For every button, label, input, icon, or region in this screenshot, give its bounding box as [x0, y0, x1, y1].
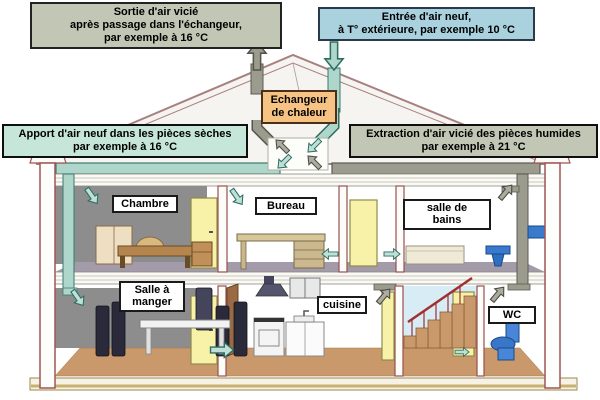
heat-exchanger-label: Echangeurde chaleur: [261, 90, 337, 124]
wc-vent-stub: [508, 284, 530, 290]
supply-arrow-icon: [227, 186, 247, 207]
room-label-salle-a-manger: Salle àmanger: [119, 281, 185, 312]
room-label-wc: WC: [488, 306, 536, 324]
kitchen-window: [290, 278, 320, 298]
room-label-salle-de-bains: salle debains: [403, 199, 491, 230]
kitchen-counter: [286, 311, 324, 356]
callout-extraction-humid-rooms: Extraction d'air vicié des pièces humide…: [349, 124, 598, 158]
callout-fresh-air-inlet: Entrée d'air neuf,à T° extérieure, par e…: [318, 7, 535, 41]
foundation: [30, 378, 577, 390]
callout-exhaust-outlet: Sortie d'air viciéaprès passage dans l'é…: [30, 2, 282, 49]
room-label-bureau: Bureau: [255, 197, 317, 215]
stairs-door: [382, 292, 394, 360]
extraction-arrow-icon: [488, 283, 509, 304]
nightstand: [192, 242, 212, 266]
supply-duct-horizontal: [56, 163, 280, 174]
callout-supply-dry-rooms: Apport d'air neuf dans les pièces sèches…: [2, 124, 248, 158]
door-knob: [209, 231, 213, 233]
supply-duct-vertical: [63, 174, 74, 290]
kitchen-vent-stub: [374, 284, 396, 290]
stove: [254, 318, 284, 356]
heat-exchange-crossing-box: [268, 136, 328, 172]
hallway-door: [350, 200, 377, 266]
bathtub: [406, 246, 464, 264]
ventilation-diagram: Sortie d'air viciéaprès passage dans l'é…: [0, 0, 600, 400]
room-label-cuisine: cuisine: [317, 296, 367, 314]
wardrobe: [96, 226, 132, 264]
attic-floor-slab: [55, 174, 545, 186]
exhaust-duct-horizontal: [332, 163, 540, 174]
room-label-chambre: Chambre: [112, 195, 178, 213]
intake-roof-arrow-icon: [325, 42, 343, 70]
